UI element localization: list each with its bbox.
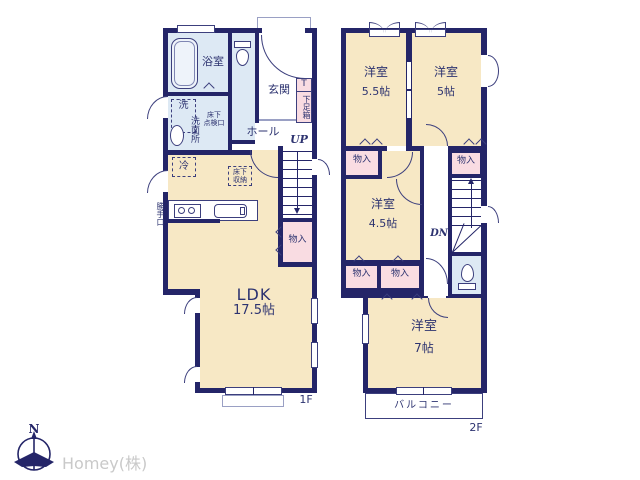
closet-bottom-wall: [283, 262, 312, 267]
bedroom-bottom-door-opening: [428, 291, 446, 298]
stairs-dn-label: DN: [427, 228, 451, 239]
toilet-bottom-wall: [232, 140, 255, 144]
backdoor-arc: [147, 170, 168, 193]
stairs-2f-arrow: [471, 184, 472, 228]
terrace-step: [222, 395, 284, 407]
bedroom-bottom-left-window: [362, 314, 369, 344]
bedroom-tr-window-arc-left: [415, 22, 430, 33]
shoebox-label: 下足箱: [298, 93, 310, 121]
bedroom-tl-size: 5.5帖: [348, 86, 404, 98]
toilet-1f-tank: [234, 41, 251, 48]
ldk-bottom-window-mullion: [253, 387, 254, 395]
washroom-door-arc: [147, 96, 168, 119]
bedroom-bottom-size: 7帖: [394, 342, 454, 355]
washbasin: [170, 125, 184, 146]
hatch-line2: 点検口: [200, 120, 228, 128]
bedroom-tr-size: 5帖: [416, 86, 476, 98]
bedroom-tr-right-window-arc-1: [488, 55, 499, 71]
bedroom-tr-window-arc-right: [431, 22, 446, 33]
fridge-label: 冷: [172, 161, 196, 172]
bedroom-tl-door-opening: [387, 146, 406, 151]
stairs-1f-arrowhead: [294, 208, 300, 214]
underfloor-storage-label: 床下 収納: [228, 169, 252, 184]
partition-tick-1: [407, 60, 411, 62]
closet-tl-label: 物入: [346, 156, 378, 166]
shoebox-top-label: T: [296, 80, 312, 92]
ldk-right-window-2: [311, 342, 318, 368]
stairs-up-label: UP: [286, 134, 312, 146]
entrance-label: 玄関: [259, 84, 299, 96]
compass-icon: N: [12, 420, 58, 476]
bedroom-tr-right-window-opening: [481, 55, 487, 87]
stairs-2f-window-arc: [488, 206, 499, 223]
kitchen-faucet: [240, 207, 245, 215]
ldk-name-label: LDK: [220, 286, 288, 304]
bedroom-mid-size: 4.5帖: [354, 218, 412, 230]
stairs-1f-arrow: [297, 151, 298, 208]
bedroom-tr-door-opening: [426, 146, 444, 151]
bottom-left-outside: [341, 298, 363, 393]
stove-burner-2: [188, 207, 195, 214]
hall-bottom-wall: [232, 150, 252, 155]
front-door-opening: [262, 28, 305, 33]
balcony-window: [396, 387, 452, 395]
hall-label: ホール: [240, 126, 286, 138]
floorplan-canvas: 物入 浴室 玄関 T 下足箱 洗 洗面所 床下 点検口: [0, 0, 640, 480]
closet-1f-label: 物入: [283, 236, 312, 246]
stove-burner-1: [178, 207, 185, 214]
closet-tr-label: 物入: [452, 157, 480, 167]
backdoor-label: 勝手口: [153, 196, 164, 232]
partition-tick-3: [407, 118, 411, 120]
bedroom-tl-window-arc-left: [369, 22, 384, 33]
bathroom-label: 浴室: [194, 56, 232, 68]
partition-tick-2: [407, 89, 411, 91]
ldk-size-label: 17.5帖: [218, 304, 290, 318]
floor-2f-label: 2F: [464, 422, 488, 434]
stairs-side-window-arc: [318, 159, 330, 175]
stairs-2f-window-opening: [481, 206, 487, 223]
closet-mc-label: 物入: [381, 270, 419, 280]
underfloor-hatch-label: 床下 点検口: [200, 112, 228, 127]
bedroom-mid-name: 洋室: [354, 198, 412, 211]
bathroom-window: [177, 25, 215, 33]
bathtub-inner: [174, 41, 195, 86]
balcony-window-mullion: [423, 387, 424, 395]
toilet-2f-bowl: [461, 264, 474, 282]
storage-line2: 収納: [228, 177, 252, 185]
stairs-side-window-opening: [312, 159, 317, 175]
floor-1f-label: 1F: [294, 394, 318, 406]
bedroom-bottom-name: 洋室: [394, 320, 454, 334]
closet-ml-label: 物入: [346, 270, 377, 280]
company-logo-text: Homey(株): [62, 450, 147, 474]
stairs-2f-arrowhead: [468, 178, 474, 184]
washroom-label: 洗面所: [185, 106, 198, 152]
bedroom-tr-name: 洋室: [416, 66, 476, 79]
bedroom-tl-window-arc-right: [385, 22, 400, 33]
entrance-step-line: [259, 119, 296, 121]
bedroom-tl-name: 洋室: [348, 66, 404, 79]
bedroom-tr-right-window-arc-2: [488, 71, 499, 87]
counter-edge: [168, 219, 220, 223]
stairs-2f-treads: [452, 180, 481, 226]
balcony-label: バルコニー: [365, 400, 483, 411]
ldk-right-window-1: [311, 298, 318, 324]
toilet-2f-tank: [458, 283, 476, 290]
